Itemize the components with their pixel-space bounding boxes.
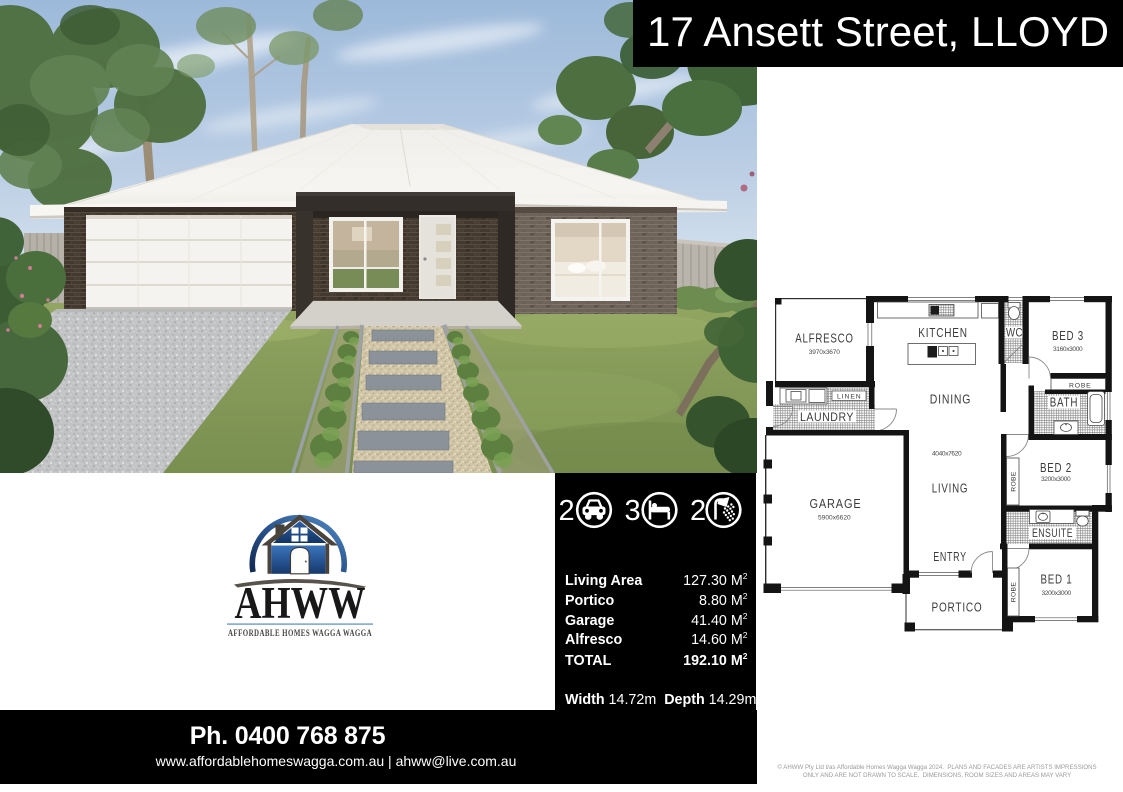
svg-text:5900x6620: 5900x6620 xyxy=(818,515,851,522)
svg-text:GARAGE: GARAGE xyxy=(810,496,862,511)
svg-text:PORTICO: PORTICO xyxy=(932,600,983,615)
svg-text:WC: WC xyxy=(1006,326,1023,340)
svg-text:LAUNDRY: LAUNDRY xyxy=(800,410,854,424)
svg-text:3970x3670: 3970x3670 xyxy=(809,349,841,356)
svg-text:4040x7620: 4040x7620 xyxy=(932,451,962,458)
svg-text:ENSUITE: ENSUITE xyxy=(1032,526,1073,540)
svg-text:LIVING: LIVING xyxy=(932,481,969,496)
svg-text:LINEN: LINEN xyxy=(837,393,861,400)
svg-text:BED 3: BED 3 xyxy=(1052,328,1084,343)
svg-text:BATH: BATH xyxy=(1050,395,1079,410)
svg-text:3200x3000: 3200x3000 xyxy=(1042,590,1072,597)
svg-text:3160x3000: 3160x3000 xyxy=(1053,346,1083,353)
svg-text:AFFORDABLE HOMES WAGGA WAGGA: AFFORDABLE HOMES WAGGA WAGGA xyxy=(228,628,372,639)
svg-text:2: 2 xyxy=(559,495,575,527)
svg-text:BED 2: BED 2 xyxy=(1040,460,1072,475)
svg-text:3200x3000: 3200x3000 xyxy=(1041,476,1071,483)
svg-text:2: 2 xyxy=(690,495,706,527)
svg-text:ENTRY: ENTRY xyxy=(933,549,967,564)
svg-text:KITCHEN: KITCHEN xyxy=(918,325,968,340)
svg-text:DINING: DINING xyxy=(930,392,972,407)
svg-text:ROBE: ROBE xyxy=(1010,471,1017,492)
svg-text:ROBE: ROBE xyxy=(1011,582,1018,603)
svg-text:BED 1: BED 1 xyxy=(1041,572,1073,587)
svg-text:3: 3 xyxy=(625,495,641,527)
svg-text:AHWW: AHWW xyxy=(235,578,366,628)
svg-text:ALFRESCO: ALFRESCO xyxy=(795,331,854,346)
svg-text:ROBE: ROBE xyxy=(1069,383,1091,390)
